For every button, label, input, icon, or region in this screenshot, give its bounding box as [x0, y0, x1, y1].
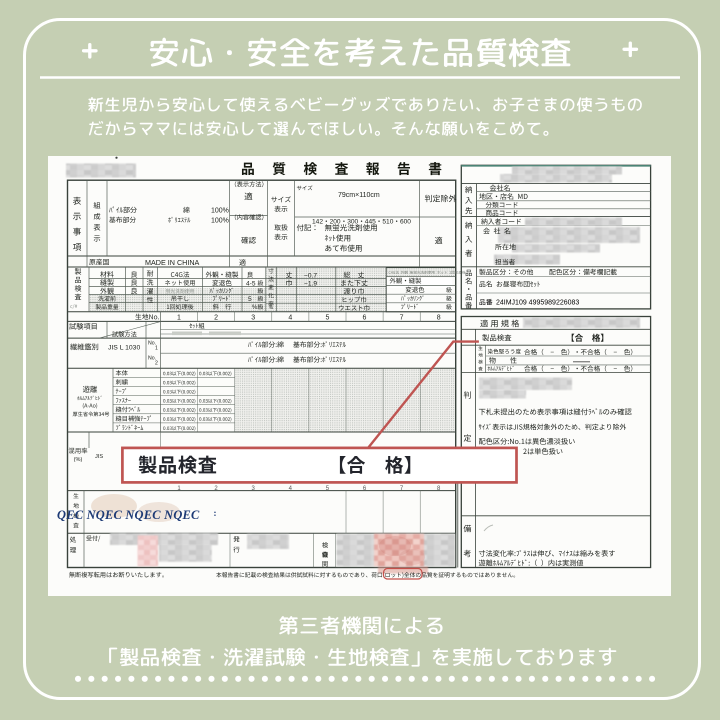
- svg-text:(%): (%): [74, 457, 83, 463]
- svg-text:79cm×110cm: 79cm×110cm: [338, 192, 380, 199]
- svg-text:8: 8: [437, 315, 441, 322]
- svg-text:1: 1: [155, 346, 158, 352]
- svg-text:2: 2: [155, 361, 158, 367]
- svg-text:MADE IN CHINA: MADE IN CHINA: [145, 258, 200, 267]
- svg-text:%: %: [269, 305, 274, 311]
- svg-text:6: 6: [363, 315, 367, 322]
- svg-text:100%: 100%: [211, 217, 229, 224]
- svg-text:2: 2: [214, 315, 218, 322]
- svg-text:−1.9: −1.9: [304, 281, 317, 288]
- svg-text:JIS L 1030: JIS L 1030: [108, 345, 140, 352]
- svg-text:24IMJ109 4995989226083: 24IMJ109 4995989226083: [496, 300, 579, 307]
- svg-text:7: 7: [400, 315, 404, 322]
- svg-text:4: 4: [288, 315, 292, 322]
- svg-text:5: 5: [325, 315, 329, 322]
- svg-text:1: 1: [177, 315, 181, 322]
- svg-text:%: %: [252, 305, 258, 311]
- svg-text:−0.7: −0.7: [304, 273, 317, 280]
- svg-text:QEC NQEC NQEC NQEC: QEC NQEC NQEC NQEC: [57, 508, 200, 522]
- svg-text:100%: 100%: [211, 208, 229, 215]
- svg-text::: :: [214, 508, 217, 518]
- svg-text:4-5: 4-5: [246, 280, 256, 287]
- svg-text:3: 3: [251, 315, 255, 322]
- svg-text:5: 5: [248, 296, 252, 303]
- svg-text:JIS: JIS: [95, 454, 103, 460]
